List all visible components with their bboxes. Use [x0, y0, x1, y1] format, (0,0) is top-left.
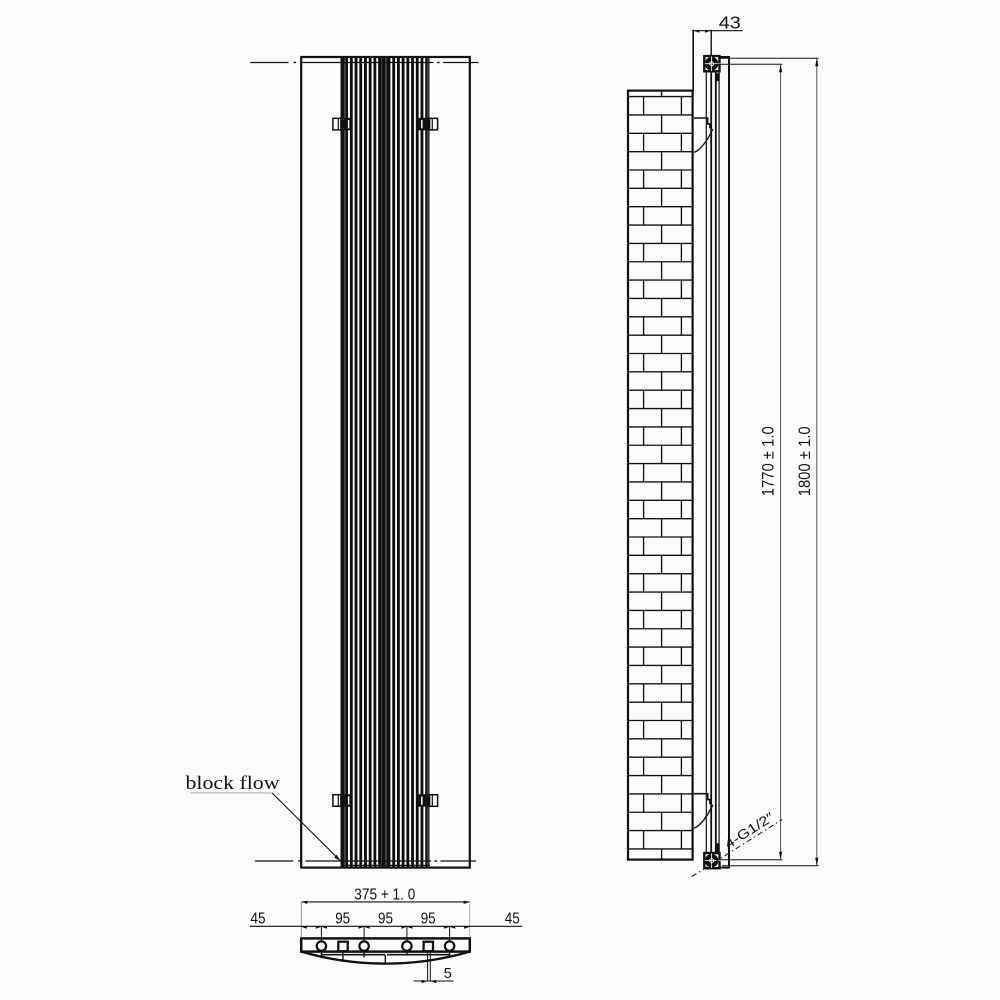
svg-text:45: 45: [505, 911, 520, 928]
svg-text:1770 ± 1.0: 1770 ± 1.0: [758, 426, 777, 496]
svg-text:375 + 1. 0: 375 + 1. 0: [354, 886, 415, 903]
svg-text:5: 5: [444, 966, 452, 982]
svg-text:45: 45: [251, 911, 266, 928]
svg-text:95: 95: [421, 911, 436, 928]
svg-text:43: 43: [719, 13, 741, 33]
svg-text:block flow: block flow: [186, 773, 280, 794]
svg-text:95: 95: [335, 911, 350, 928]
svg-text:1800 ± 1.0: 1800 ± 1.0: [795, 426, 814, 496]
svg-text:95: 95: [378, 911, 393, 928]
